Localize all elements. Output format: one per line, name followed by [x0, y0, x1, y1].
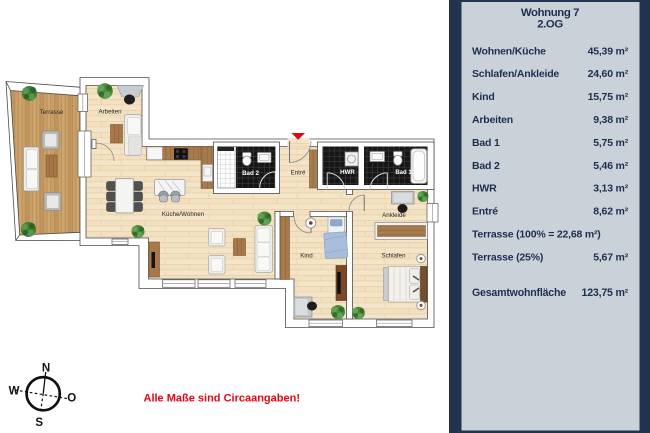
- svg-text:5,75 m²: 5,75 m²: [593, 137, 628, 149]
- svg-text:Terrasse (100% = 22,68 m²): Terrasse (100% = 22,68 m²): [472, 229, 601, 241]
- svg-text:Terrasse: Terrasse: [40, 109, 64, 116]
- svg-text:Gesamtwohnfläche: Gesamtwohnfläche: [472, 287, 566, 299]
- svg-text:5,67 m²: 5,67 m²: [593, 251, 628, 263]
- svg-text:S: S: [35, 417, 43, 429]
- svg-text:Bad 2: Bad 2: [242, 170, 259, 177]
- svg-text:Entré: Entré: [472, 206, 498, 218]
- svg-text:24,60 m²: 24,60 m²: [588, 68, 629, 80]
- svg-text:5,46 m²: 5,46 m²: [593, 160, 628, 172]
- svg-text:Bad 2: Bad 2: [472, 160, 500, 172]
- svg-text:Schlafen/Ankleide: Schlafen/Ankleide: [472, 68, 559, 80]
- svg-text:Kind: Kind: [300, 253, 313, 260]
- svg-text:Küche/Wohnen: Küche/Wohnen: [162, 211, 205, 218]
- svg-text:HWR: HWR: [472, 183, 497, 195]
- svg-text:HWR: HWR: [340, 169, 355, 176]
- svg-text:8,62 m²: 8,62 m²: [593, 206, 628, 218]
- svg-text:9,38 m²: 9,38 m²: [593, 114, 628, 126]
- svg-text:2.OG: 2.OG: [537, 19, 563, 31]
- svg-text:Wohnung 7: Wohnung 7: [521, 7, 579, 19]
- svg-text:W: W: [9, 385, 20, 397]
- svg-text:N: N: [42, 362, 50, 374]
- svg-text:Kind: Kind: [472, 91, 495, 103]
- svg-text:O: O: [67, 393, 76, 405]
- svg-text:45,39 m²: 45,39 m²: [588, 45, 629, 57]
- svg-text:Arbeiten: Arbeiten: [472, 114, 513, 126]
- svg-text:Bad 1: Bad 1: [395, 170, 412, 176]
- svg-text:3,13 m²: 3,13 m²: [593, 183, 628, 195]
- svg-text:Terrasse (25%): Terrasse (25%): [472, 251, 543, 263]
- svg-text:15,75 m²: 15,75 m²: [588, 91, 629, 103]
- svg-text:123,75 m²: 123,75 m²: [582, 287, 629, 299]
- svg-text:Ankleide: Ankleide: [382, 212, 406, 219]
- svg-text:Alle Maße sind Circaangaben!: Alle Maße sind Circaangaben!: [144, 393, 300, 405]
- svg-text:Wohnen/Küche: Wohnen/Küche: [472, 45, 546, 57]
- svg-text:Bad 1: Bad 1: [472, 137, 500, 149]
- svg-text:Entré: Entré: [291, 169, 306, 176]
- svg-text:Arbeiten: Arbeiten: [98, 109, 122, 116]
- svg-text:Schlafen: Schlafen: [381, 253, 406, 260]
